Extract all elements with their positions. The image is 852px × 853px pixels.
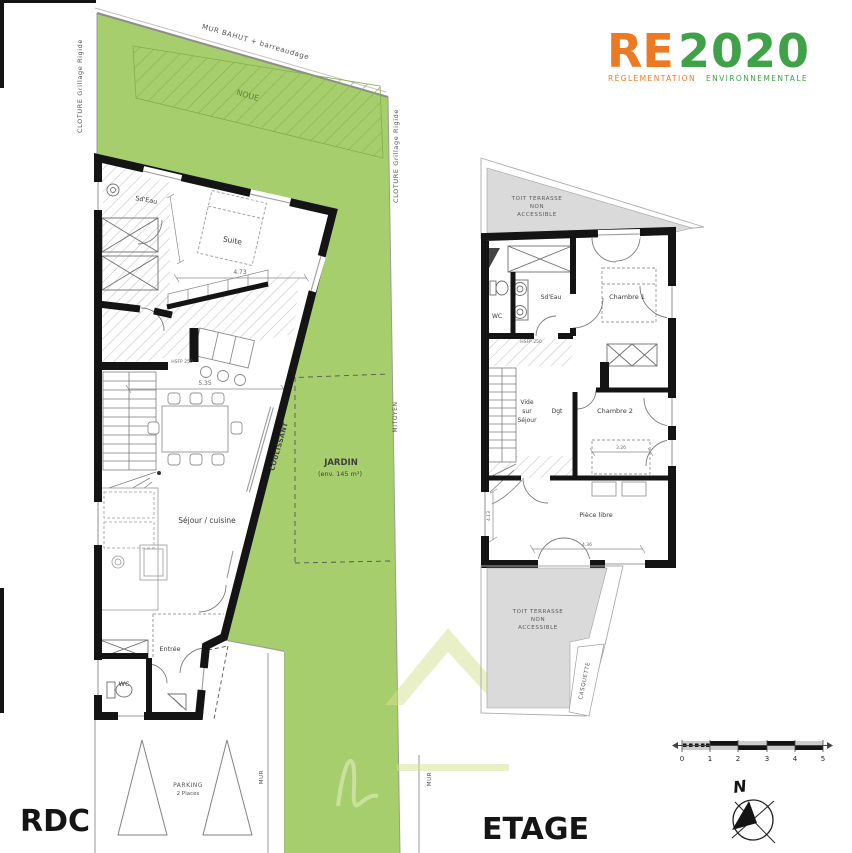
toit-top-l1: TOIT TERRASSE [511,196,563,202]
etage-hsfp-label: HSFP 250 [520,339,542,345]
etage-room-dgt: Dgt [552,408,563,415]
compass-rose: N [732,776,775,843]
scale-bar: 0 1 2 3 4 5 [672,740,833,763]
re2020-subtitle-2: ENVIRONNEMENTALE [706,74,808,83]
cloture-right-label: CLOTURE Grillage Rigide [392,109,400,203]
etage-room-piece-libre: Pièce libre [579,511,613,519]
jardin-label: JARDIN [323,458,358,468]
compass-north-label: N [732,776,749,797]
scale-tick-4: 4 [793,755,798,763]
etage-vide-l2: sur [522,408,532,415]
rdc-room-sejour: Séjour / cuisine [178,516,236,525]
scale-tick-1: 1 [708,755,712,763]
rdc-room-wc: WC [119,680,130,688]
etage-vide-l1: Vide [520,399,533,406]
rdc-room-entree: Entrée [159,645,180,653]
toit-top-l2: NON [530,204,544,210]
scale-tick-0: 0 [680,755,684,763]
cloture-left-label: CLOTURE Grillage Rigide [76,39,84,133]
jardin-area-label: (env. 145 m²) [318,470,362,478]
mitoyen-label: MITOYEN [392,401,399,432]
etage-vide-l3: Séjour [517,417,537,424]
toit-bottom-l3: ACCESSIBLE [518,625,558,631]
etage-dim-piece-w: 4.36 [582,542,592,548]
toit-bottom-l1: TOIT TERRASSE [512,609,564,615]
scale-tick-5: 5 [821,755,825,763]
mur-parking-label: MUR [259,770,265,784]
parking-label-2: 2 Places [177,791,200,797]
etage-room-wc: WC [492,313,502,320]
floorplan-page: NOUE MUR BAHUT + barreaudage CLOTURE Gri… [0,0,852,853]
compass-needle [732,801,757,830]
etage-dim-piece-h: 4.13 [486,511,492,521]
re2020-re: RE [607,24,674,78]
rdc-title: RDC [20,804,90,839]
rdc-hsfp-label: HSFP 250 [171,359,193,365]
mur-right-label: MUR [427,772,433,786]
scale-tick-3: 3 [765,755,769,763]
scale-tick-2: 2 [736,755,740,763]
toit-top-l3: ACCESSIBLE [517,212,557,218]
rdc-dim-suite: 4.73 [233,269,247,276]
etage-plan: TOIT TERRASSE NON ACCESSIBLE [481,158,704,716]
etage-room-chambre2: Chambre 2 [597,407,633,415]
etage-room-sdeau: Sd'Eau [541,294,562,301]
floorplan-drawing: NOUE MUR BAHUT + barreaudage CLOTURE Gri… [0,0,852,853]
rdc-kitchen-counter [100,488,167,610]
etage-title: ETAGE [482,812,589,847]
etage-lower-terrace: TOIT TERRASSE NON ACCESSIBLE CASQUETTE [481,566,623,716]
etage-dim-chambre2: 3.26 [616,445,626,451]
re2020-year: 2020 [678,24,810,78]
re2020-subtitle-1: RÉGLEMENTATION [608,74,696,83]
rdc-dim-sejour: 5.35 [198,380,212,387]
re2020-logo: RE 2020 RÉGLEMENTATION ENVIRONNEMENTALE [607,24,810,83]
etage-room-chambre1: Chambre 1 [609,293,645,301]
toit-bottom-l2: NON [531,617,545,623]
parking-label-1: PARKING [173,782,203,789]
